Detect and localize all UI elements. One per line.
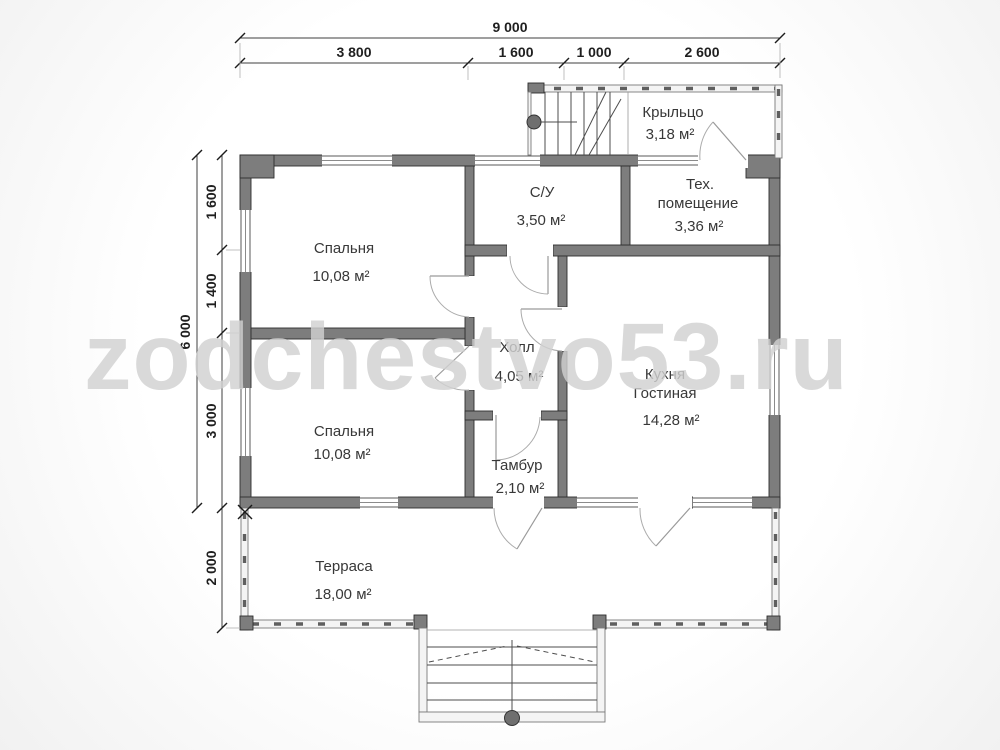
room-bedroom2-name: Спальня	[314, 423, 374, 440]
dimensions-top: 9 000 3 800 1 600 1 000 2 600	[235, 19, 785, 80]
room-vestibule-area: 2,10 м²	[496, 480, 545, 497]
window-kitchen-bottom-east	[693, 496, 752, 509]
room-bedroom2-area: 10,08 м²	[313, 446, 370, 463]
room-bathroom-name: С/У	[530, 184, 555, 201]
dim-top-seg-4: 2 600	[684, 44, 719, 60]
room-terrace-name: Терраса	[315, 558, 373, 575]
terrace-post	[414, 615, 427, 629]
window-bathroom-top	[475, 154, 540, 167]
dim-left-seg-4: 2 000	[203, 550, 219, 585]
window-kitchen-bottom-west	[577, 496, 638, 509]
room-porch-name: Крыльцо	[642, 104, 703, 121]
stair-start-marker	[527, 115, 541, 129]
room-bedroom1-area: 10,08 м²	[312, 268, 369, 285]
door-bathroom	[507, 244, 553, 294]
dim-top-seg-2: 1 600	[498, 44, 533, 60]
room-tech-area: 3,36 м²	[675, 218, 724, 235]
window-bedroom1-top	[322, 154, 392, 167]
stair-start-marker	[505, 711, 520, 726]
dim-top-seg-1: 3 800	[336, 44, 371, 60]
window-bedroom1-left	[239, 210, 252, 272]
room-tech-name-1: Тех.	[686, 176, 714, 193]
watermark: zodchestvo53.ru	[84, 310, 914, 405]
terrace-post	[240, 616, 253, 630]
room-vestibule-name: Тамбур	[492, 457, 543, 474]
room-terrace-area: 18,00 м²	[314, 586, 371, 603]
room-kitchen-area: 14,28 м²	[642, 412, 699, 429]
room-porch-area: 3,18 м²	[646, 126, 695, 143]
room-bedroom1-name: Спальня	[314, 240, 374, 257]
window-tech-top	[638, 154, 698, 167]
dim-top-total: 9 000	[492, 19, 527, 35]
window-bedroom2-bottom	[360, 496, 398, 509]
door-vestibule-hall	[493, 410, 541, 460]
dim-top-seg-3: 1 000	[576, 44, 611, 60]
door-kitchen-terrace	[640, 508, 690, 546]
terrace-post	[767, 616, 780, 630]
room-tech-name-2: помещение	[658, 195, 739, 212]
dim-left-seg-1: 1 600	[203, 184, 219, 219]
entrance-stairs	[419, 628, 605, 726]
terrace-post	[593, 615, 606, 629]
porch-stairs	[527, 92, 621, 155]
door-vestibule-terrace	[494, 508, 542, 549]
floor-plan-page: 9 000 3 800 1 600 1 000 2 600 6 000 1 60…	[0, 0, 1000, 750]
room-bathroom-area: 3,50 м²	[517, 212, 566, 229]
